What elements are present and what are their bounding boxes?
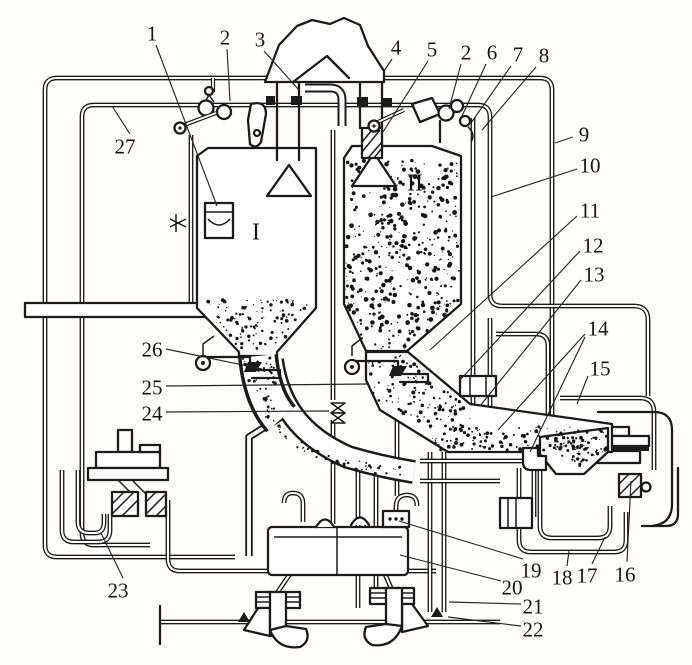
speck-dot [389,395,392,398]
speck-dot [502,432,505,435]
speck-dot [253,334,255,336]
speck-dot [365,462,367,464]
speck-dot [437,300,441,304]
speck-dot [431,191,434,194]
speck-dot [484,433,486,435]
speck-dot [440,419,442,421]
speck-dot [284,435,286,437]
speck-dot [450,169,453,172]
speck-dot [569,427,570,428]
speck-dot [556,446,558,448]
speck-dot [431,210,433,212]
speck-dot [363,231,364,232]
callout-label: 20 [502,575,523,599]
speck-dot [431,244,433,246]
speck-dot [424,247,428,251]
callout-label: 25 [142,375,163,399]
speck-dot [348,302,349,303]
speck-dot [450,182,453,185]
speck-dot [388,252,390,254]
speck-dot [392,335,395,338]
speck-dot [567,443,568,444]
callout-label: 26 [142,337,163,361]
speck-dot [343,465,345,467]
speck-dot [440,198,444,202]
speck-dot [577,429,579,431]
speck-dot [409,365,412,368]
speck-dot [405,203,406,204]
leader-line [491,169,577,197]
speck-dot [454,169,455,170]
speck-dot [378,256,380,258]
speck-dot [483,446,486,449]
speck-dot [400,244,404,248]
speck-dot [484,439,487,442]
base-mark-right [431,607,443,617]
speck-dot [436,314,437,315]
speck-dot [422,392,425,395]
speck-dot [403,344,407,348]
pipe-loop-17 [540,470,610,538]
speck-dot [426,277,427,278]
speck-dot [406,337,410,341]
speck-dot [345,268,347,270]
speck-dot [374,250,378,254]
speck-dot [437,268,440,271]
speck-dot [408,266,413,271]
speck-dot [432,310,434,312]
speck-dot [402,168,406,172]
speck-dot [352,278,356,282]
speck-dot [453,197,455,199]
speck-dot [399,474,401,476]
speck-dot [253,380,256,383]
speck-dot [448,236,451,239]
speck-dot [301,441,303,443]
speck-dot [267,301,269,303]
speck-dot [446,220,448,222]
speck-dot [437,228,441,232]
speck-dot [372,307,375,310]
speck-dot [284,335,288,339]
speck-dot [447,176,448,177]
speck-dot [400,202,405,207]
float-ball-b [217,105,231,119]
speck-dot [397,212,401,216]
speck-dot [394,241,398,245]
speck-dot [434,407,436,409]
callout-label: 2 [461,40,472,64]
speck-dot [385,235,389,239]
schematic-figure: 1234526789101112131415161718192021222324… [0,0,692,665]
speck-dot [402,234,406,238]
speck-dot [373,302,374,303]
speck-dot [415,276,419,280]
speck-dot [358,225,360,227]
speck-dot [381,348,382,349]
speck-dot [446,186,449,189]
speck-dot [452,445,456,449]
speck-dot [402,253,405,256]
speck-dot [500,445,504,449]
speck-dot [450,286,452,288]
speck-dot [303,447,305,449]
speck-dot [479,434,481,436]
speck-dot [407,377,409,379]
speck-dot [365,277,369,281]
speck-dot [429,404,430,405]
speck-dot [354,468,356,470]
speck-dot [248,339,250,341]
speck-dot [407,279,408,280]
speck-dot [261,330,264,333]
speck-dot [432,438,433,439]
speck-dot [267,409,269,411]
speck-dot [285,319,289,323]
speck-dot [587,441,590,444]
flange-a [266,96,275,105]
speck-dot [398,402,399,403]
speck-dot [408,330,410,332]
speck-dot [382,200,386,204]
speck-dot [399,468,400,469]
float-knob [205,87,213,95]
speck-dot [441,297,443,299]
speck-dot [270,372,273,375]
tank-hump-right [351,518,369,526]
speck-dot [418,392,420,394]
speck-dot [410,316,414,320]
speck-dot [226,318,229,321]
speck-dot [452,256,453,257]
speck-dot [561,447,563,449]
speck-dot [386,400,388,402]
speck-dot [423,191,425,193]
speck-dot [442,251,443,252]
speck-dot [368,250,369,251]
speck-dot [412,236,417,241]
speck-dot [448,416,449,417]
speck-dot [448,240,450,242]
speck-dot [430,385,433,388]
speck-dot [355,163,358,166]
speck-dot [450,162,454,166]
speck-dot [316,456,318,458]
leader-line [112,106,130,134]
speck-dot [355,206,358,209]
speck-dot [372,246,375,249]
speck-dot [445,308,448,311]
speck-dot [583,445,584,446]
speck-dot [391,283,392,284]
speck-dot [415,376,416,377]
speck-dot [397,314,401,318]
speck-dot [413,401,415,403]
speck-dot [449,395,452,398]
speck-dot [440,285,442,287]
callout-label: 10 [580,153,601,177]
speck-dot [463,442,465,444]
speck-dot [270,363,272,365]
speck-dot [388,279,392,283]
speck-dot [413,396,416,399]
speck-dot [359,288,363,292]
speck-dot [411,330,414,333]
speck-dot [358,233,361,236]
speck-dot [461,406,465,410]
speck-dot [413,232,416,235]
speck-dot [349,223,354,228]
speck-dot [468,435,469,436]
speck-dot [353,253,355,255]
speck-dot [447,167,449,169]
speck-dot [352,310,356,314]
speck-dot [256,311,257,312]
speck-dot [346,285,349,288]
speck-dot [388,338,390,340]
speck-dot [371,325,373,327]
speck-dot [427,319,429,321]
speck-dot [417,270,421,274]
speck-dot [375,223,377,225]
speck-dot [455,206,457,208]
speck-dot [369,372,373,376]
speck-dot [439,448,442,451]
latch-cam [248,103,266,146]
speck-dot [426,329,429,332]
callout-label: 3 [255,27,266,51]
speck-dot [417,419,421,423]
speck-dot [292,300,294,302]
latch-pin [254,130,260,136]
speck-dot [376,233,380,237]
speck-dot [429,428,430,429]
speck-dot [438,163,441,166]
speck-dot [223,326,225,328]
speck-dot [366,246,368,248]
speck-dot [603,432,604,433]
speck-dot [458,400,461,403]
speck-dot [350,294,354,298]
speck-dot [229,318,233,322]
speck-dot [429,317,434,322]
speck-dot [447,264,451,268]
speck-dot [444,424,447,427]
speck-dot [441,438,444,441]
speck-dot [576,447,579,450]
speck-dot [352,258,355,261]
speck-dot [390,193,395,198]
duct-transition [540,428,608,474]
speck-dot [429,239,431,241]
speck-dot [451,418,455,422]
speck-dot [392,245,395,248]
speck-dot [471,431,473,433]
speck-dot [377,273,378,274]
speck-dot [446,440,448,442]
speck-dot [385,302,386,303]
speck-dot [575,449,576,450]
speck-dot [437,406,438,407]
speck-dot [268,407,269,408]
speck-dot [280,317,283,320]
speck-dot [581,439,584,442]
speck-dot [585,459,588,462]
speck-dot [428,197,431,200]
speck-dot [399,249,401,251]
speck-dot [423,214,428,219]
charge-valve-left [175,78,267,147]
speck-dot [273,420,275,422]
speck-dot [374,236,375,237]
speck-dot [388,254,390,256]
valve23-step [140,445,160,452]
speck-dot [387,385,388,386]
speck-dot [380,231,381,232]
speck-dot [389,330,391,332]
speck-dot [479,445,481,447]
speck-dot [357,291,359,293]
speck-dot [345,289,346,290]
speck-dot [444,269,445,270]
nozzle-left-shoe [270,626,308,647]
speck-dot [388,242,392,246]
speck-dot [380,315,385,320]
speck-dot [364,297,369,302]
speck-dot [273,367,275,369]
speck-dot [592,437,594,439]
speck-dot [374,289,378,293]
speck-dot [346,263,347,264]
speck-dot [398,329,402,333]
speck-dot [393,187,398,192]
speck-dot [578,451,579,452]
speck-dot [445,210,447,212]
speck-dot [377,303,381,307]
callout-label: 18 [552,565,573,589]
speck-dot [454,441,458,445]
speck-dot [398,218,400,220]
speck-dot [356,254,360,258]
speck-dot [398,408,401,411]
speck-dot [566,449,569,452]
speck-dot [255,333,256,334]
speck-dot [407,256,411,260]
speck-dot [386,215,389,218]
speck-dot [374,387,375,388]
speck-dot [240,333,241,334]
speck-dot [439,397,441,399]
speck-dot [414,167,417,170]
speck-dot [605,435,608,438]
speck-dot [385,267,386,268]
speck-dot [281,301,283,303]
speck-dot [445,402,447,404]
speck-dot [417,317,420,320]
speck-dot [560,443,563,446]
speck-dot [456,163,458,165]
speck-dot [292,301,294,303]
speck-dot [282,309,284,311]
speck-dot [235,337,238,340]
speck-dot [422,242,424,244]
speck-dot [441,247,445,251]
speck-dot [425,262,429,266]
speck-dot [247,335,250,338]
speck-dot [409,202,412,205]
speck-dot [259,388,261,390]
speck-dot [475,427,478,430]
speck-dot [387,222,390,225]
speck-dot [347,462,350,465]
speck-dot [454,300,456,302]
speck-dot [379,326,382,329]
speck-dot [417,369,421,373]
speck-dot [247,379,250,382]
speck-dot [455,216,457,218]
speck-dot [416,365,418,367]
speck-dot [345,296,348,299]
speck-dot [306,304,308,306]
speck-dot [563,445,564,446]
speck-dot [458,270,460,272]
speck-dot [440,217,442,219]
speck-dot [261,302,263,304]
speck-dot [372,362,374,364]
speck-dot [352,191,356,195]
speck-dot [443,168,447,172]
speck-dot [273,300,274,301]
speck-dot [452,230,453,231]
speck-dot [427,420,430,423]
speck-dot [250,325,252,327]
speck-dot [360,270,362,272]
speck-dot [437,203,441,207]
speck-dot [357,166,361,170]
pipe-loop-17 [540,470,610,538]
speck-dot [602,451,603,452]
speck-dot [559,432,562,435]
speck-dot [555,448,557,450]
speck-dot [575,437,577,439]
speck-dot [317,450,319,452]
speck-dot [365,291,366,292]
speck-dot [282,313,286,317]
speck-dot [378,399,381,402]
speck-dot [401,360,405,364]
speck-dot [571,444,574,447]
speck-dot [441,408,444,411]
speck-dot [524,440,527,443]
speck-dot [416,251,420,255]
speck-dot [409,395,410,396]
speck-dot [414,387,417,390]
speck-dot [421,303,425,307]
speck-dot [418,231,420,233]
speck-dot [450,440,452,442]
speck-dot [302,307,304,309]
speck-dot [503,437,505,439]
speck-dot [383,297,387,301]
speck-dot [260,300,261,301]
valve23-crossbar [96,452,160,468]
speck-dot [427,237,428,238]
speck-dot [244,325,247,328]
speck-dot [434,441,436,443]
callout-label: 8 [539,43,550,67]
speck-dot [325,459,327,461]
speck-dot [400,355,402,357]
